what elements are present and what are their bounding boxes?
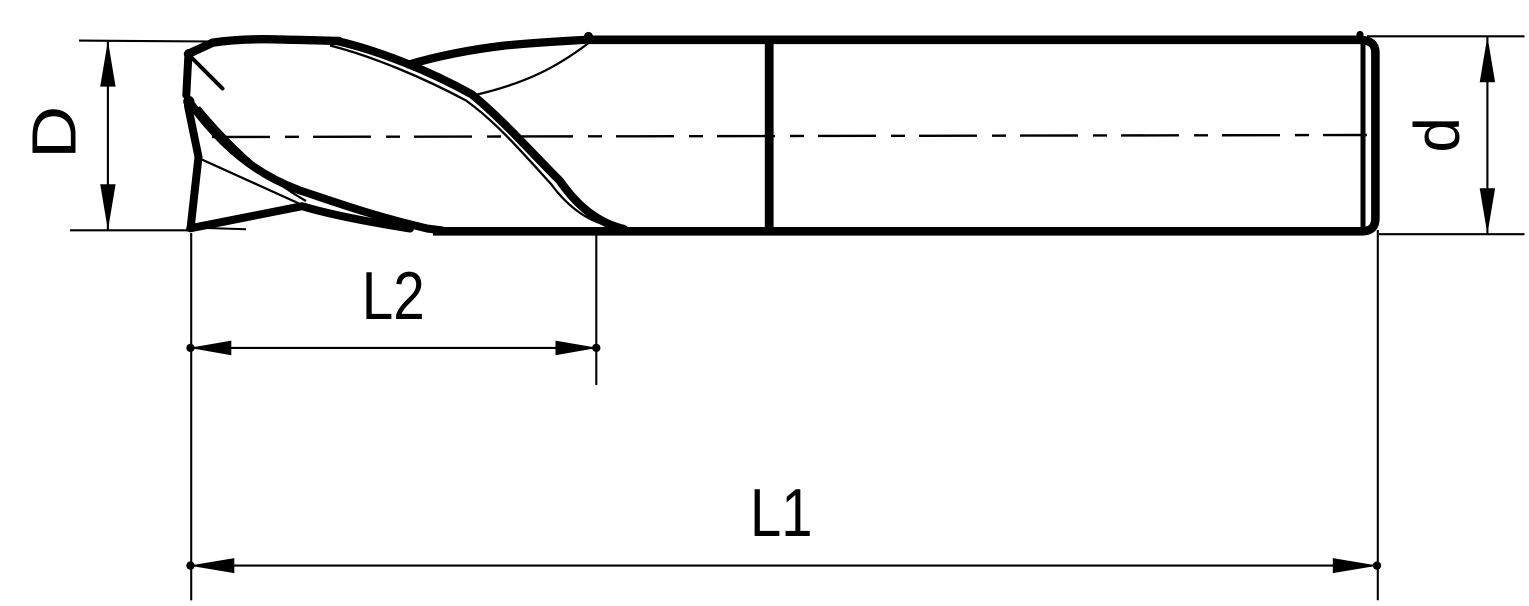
svg-text:L2: L2 [362,258,425,334]
svg-text:d: d [1401,117,1473,153]
svg-text:L1: L1 [750,475,813,551]
svg-text:D: D [20,106,89,159]
